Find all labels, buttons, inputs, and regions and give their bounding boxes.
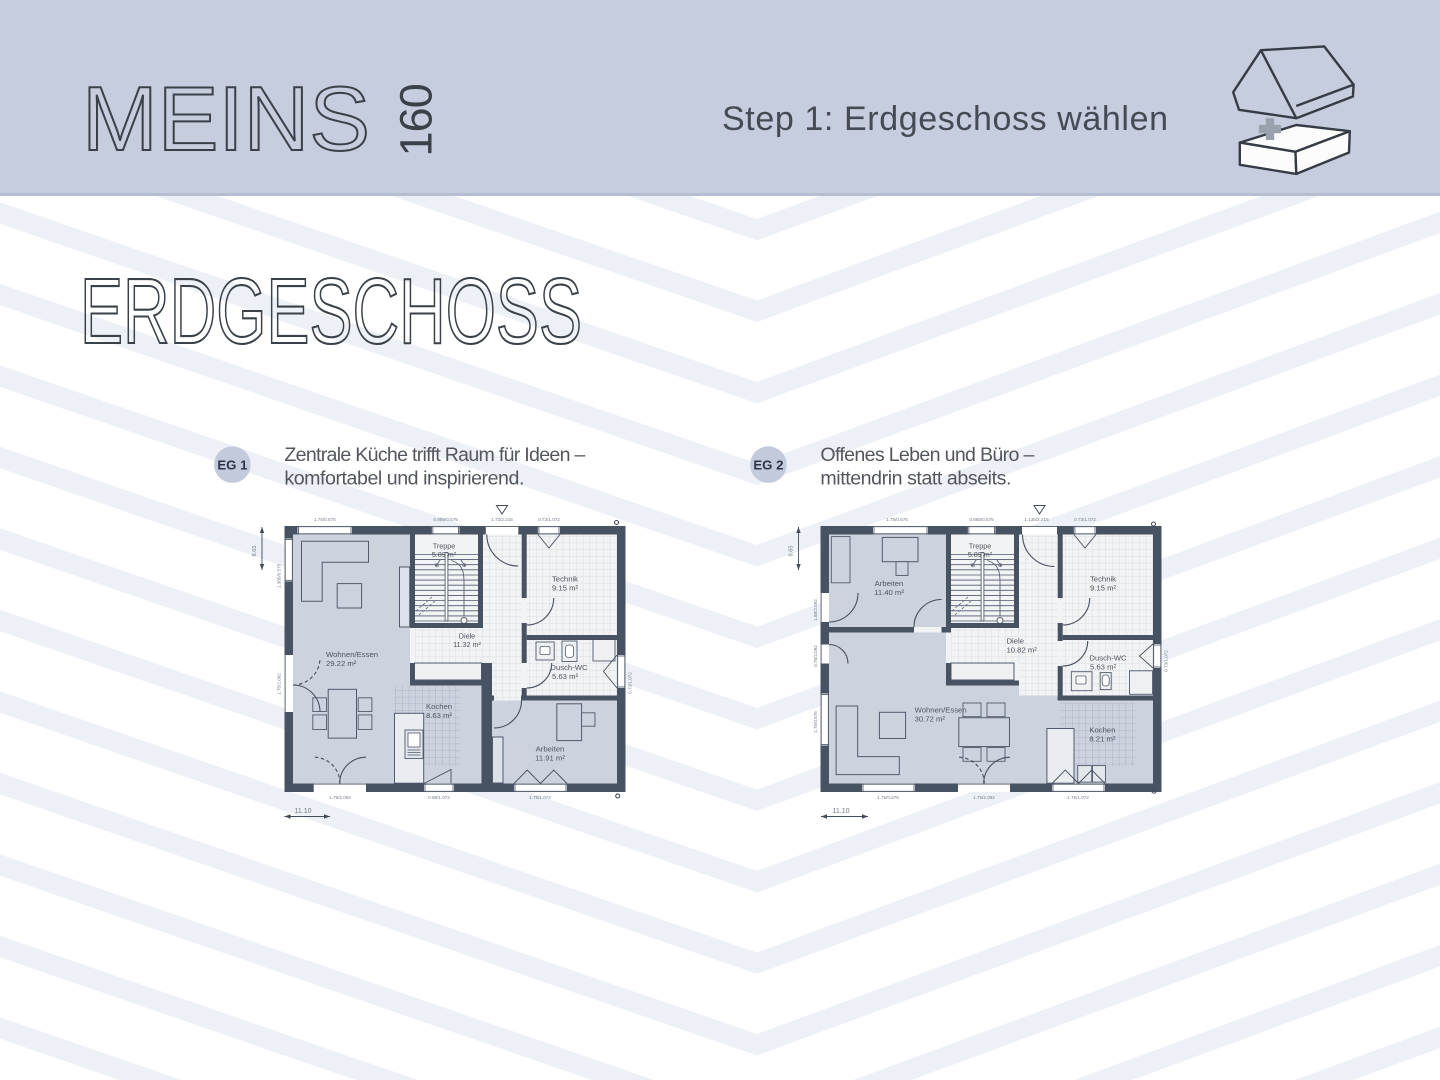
svg-text:1.75/2.092: 1.75/2.092: [277, 673, 282, 695]
svg-text:8.65: 8.65: [252, 546, 258, 557]
svg-text:0.885/0.575: 0.885/0.575: [434, 517, 459, 522]
svg-text:Arbeiten: Arbeiten: [875, 579, 904, 588]
svg-text:Kochen: Kochen: [426, 702, 452, 711]
svg-text:11.10: 11.10: [833, 808, 850, 815]
svg-text:1.75/2.092: 1.75/2.092: [973, 795, 995, 800]
svg-text:5.63 m²: 5.63 m²: [552, 672, 579, 681]
svg-text:1.75/0.575: 1.75/0.575: [314, 517, 336, 522]
svg-text:8.63 m²: 8.63 m²: [426, 711, 453, 720]
svg-text:5.63 m²: 5.63 m²: [1090, 663, 1117, 672]
svg-text:Diele: Diele: [1007, 637, 1025, 646]
svg-text:0.73/1.072: 0.73/1.072: [628, 672, 633, 694]
svg-text:9.15 m²: 9.15 m²: [552, 584, 579, 593]
svg-text:Dusch-WC: Dusch-WC: [550, 663, 588, 672]
svg-text:komfortabel und inspirierend.: komfortabel und inspirierend.: [284, 468, 524, 490]
svg-text:0.73/1.072: 0.73/1.072: [538, 517, 560, 522]
svg-text:5.89 m²: 5.89 m²: [968, 550, 993, 559]
svg-text:Offenes Leben und Büro –: Offenes Leben und Büro –: [820, 444, 1034, 466]
svg-text:1.75/0.575: 1.75/0.575: [813, 711, 818, 733]
svg-text:11.10: 11.10: [295, 808, 312, 815]
svg-text:0.98/1.072: 0.98/1.072: [428, 795, 450, 800]
svg-text:1.88/2.092: 1.88/2.092: [813, 599, 818, 621]
svg-text:0.73/1.072: 0.73/1.072: [1164, 650, 1169, 672]
svg-text:Step 1: Erdgeschoss wählen: Step 1: Erdgeschoss wählen: [722, 100, 1168, 138]
svg-text:mittendrin statt abseits.: mittendrin statt abseits.: [820, 468, 1011, 490]
svg-text:11.32 m²: 11.32 m²: [453, 640, 481, 649]
svg-text:ERDGESCHOSS: ERDGESCHOSS: [80, 259, 582, 363]
svg-text:1.75/1.072: 1.75/1.072: [1067, 795, 1089, 800]
svg-text:MEINS: MEINS: [82, 69, 370, 170]
svg-text:11.91 m²: 11.91 m²: [535, 754, 565, 763]
svg-text:10.82 m²: 10.82 m²: [1007, 646, 1038, 655]
svg-text:Zentrale Küche trifft Raum für: Zentrale Küche trifft Raum für Ideen –: [284, 444, 585, 466]
svg-text:EG 2: EG 2: [753, 457, 783, 472]
svg-text:1.135/2.215: 1.135/2.215: [1024, 517, 1049, 522]
svg-text:1.385/0.575: 1.385/0.575: [277, 563, 282, 588]
svg-text:1.75/2.092: 1.75/2.092: [329, 795, 351, 800]
svg-text:Wohnen/Essen: Wohnen/Essen: [326, 650, 378, 659]
svg-text:Wohnen/Essen: Wohnen/Essen: [915, 706, 967, 715]
svg-text:1.75/0.575: 1.75/0.575: [877, 795, 899, 800]
svg-text:160: 160: [391, 84, 442, 156]
svg-text:8.65: 8.65: [789, 546, 795, 557]
svg-text:EG 1: EG 1: [217, 457, 247, 472]
svg-text:Arbeiten: Arbeiten: [536, 745, 565, 754]
svg-text:1.75/1.072: 1.75/1.072: [529, 795, 551, 800]
svg-text:Technik: Technik: [1090, 575, 1116, 584]
svg-text:0.885/0.575: 0.885/0.575: [969, 517, 994, 522]
svg-text:Technik: Technik: [552, 575, 578, 584]
svg-text:1.73/2.215: 1.73/2.215: [491, 517, 513, 522]
svg-text:30.72 m²: 30.72 m²: [915, 715, 946, 724]
svg-text:9.15 m²: 9.15 m²: [1090, 584, 1117, 593]
svg-text:0.73/1.072: 0.73/1.072: [1074, 517, 1096, 522]
svg-text:8.21 m²: 8.21 m²: [1089, 735, 1116, 744]
svg-text:1.75/0.575: 1.75/0.575: [886, 517, 908, 522]
svg-text:11.40 m²: 11.40 m²: [874, 588, 904, 597]
svg-text:Dusch-WC: Dusch-WC: [1089, 654, 1127, 663]
svg-text:5.89 m²: 5.89 m²: [432, 550, 457, 559]
svg-text:0.76/2.092: 0.76/2.092: [813, 645, 818, 667]
svg-text:Kochen: Kochen: [1089, 726, 1115, 735]
svg-text:29.22 m²: 29.22 m²: [326, 659, 357, 668]
